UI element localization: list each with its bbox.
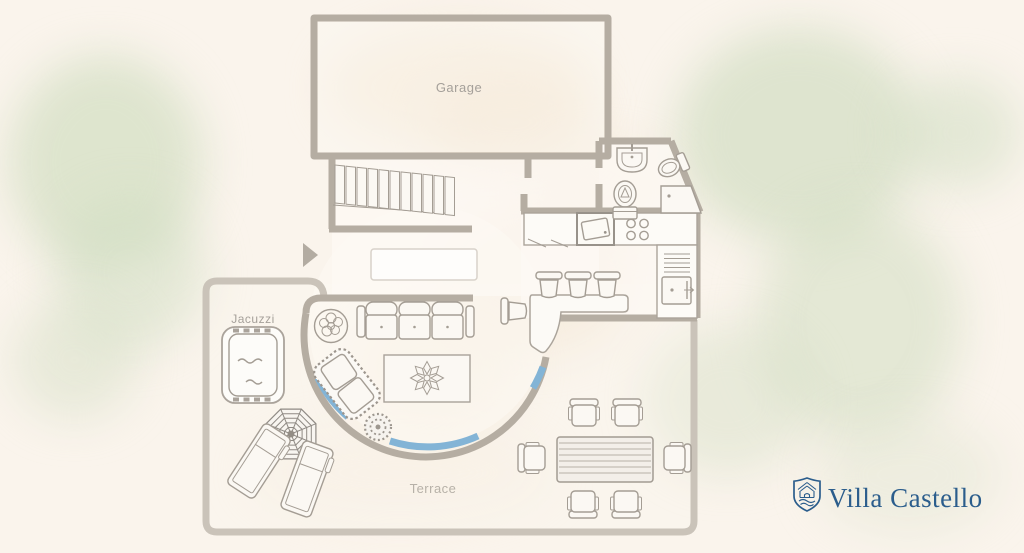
floorplan-canvas: Jacuzzi <box>0 0 1024 553</box>
brand-name: Villa Castello <box>828 483 983 513</box>
sofa-seat <box>399 302 430 339</box>
sofa-armrest <box>466 306 474 337</box>
stair-step <box>423 174 433 213</box>
dining-chair <box>612 399 643 426</box>
bidet <box>613 181 637 219</box>
stair-step <box>401 172 411 211</box>
sofa-seat <box>366 302 397 339</box>
dining-table <box>557 437 653 482</box>
stair-step <box>434 175 444 214</box>
shower <box>661 186 701 213</box>
floorplan-svg: Jacuzzi <box>0 0 1024 553</box>
shield-crest-icon <box>794 478 820 511</box>
stair-step <box>379 170 389 209</box>
flower-ornament-icon <box>411 362 444 395</box>
garage-label: Garage <box>436 80 482 95</box>
shrub-plant <box>365 414 391 440</box>
dining-chair <box>569 399 600 426</box>
stair-step <box>445 177 455 216</box>
coffee-table <box>384 355 470 402</box>
stair-step <box>412 173 422 212</box>
sofa <box>357 302 474 339</box>
washbasin <box>617 144 647 172</box>
dining-chair <box>664 443 691 474</box>
jacuzzi-label: Jacuzzi <box>231 312 275 326</box>
stair-step <box>357 167 367 206</box>
brand-logo: Villa Castello <box>794 478 983 513</box>
stair-step <box>335 165 345 204</box>
stair-step <box>390 171 400 210</box>
dining-chair <box>568 491 599 518</box>
sofa-seat <box>432 302 463 339</box>
oven <box>662 277 694 304</box>
sofa-armrest <box>357 306 365 337</box>
terrace-label: Terrace <box>410 481 457 496</box>
jacuzzi-tub <box>222 327 284 403</box>
stair-step <box>368 168 378 207</box>
entrance-arrow-icon <box>303 243 318 267</box>
dining-chair <box>611 491 642 518</box>
stair-step <box>346 166 356 205</box>
sideboard <box>371 249 477 280</box>
dining-chair <box>518 443 545 474</box>
kitchen-sink <box>577 213 614 245</box>
